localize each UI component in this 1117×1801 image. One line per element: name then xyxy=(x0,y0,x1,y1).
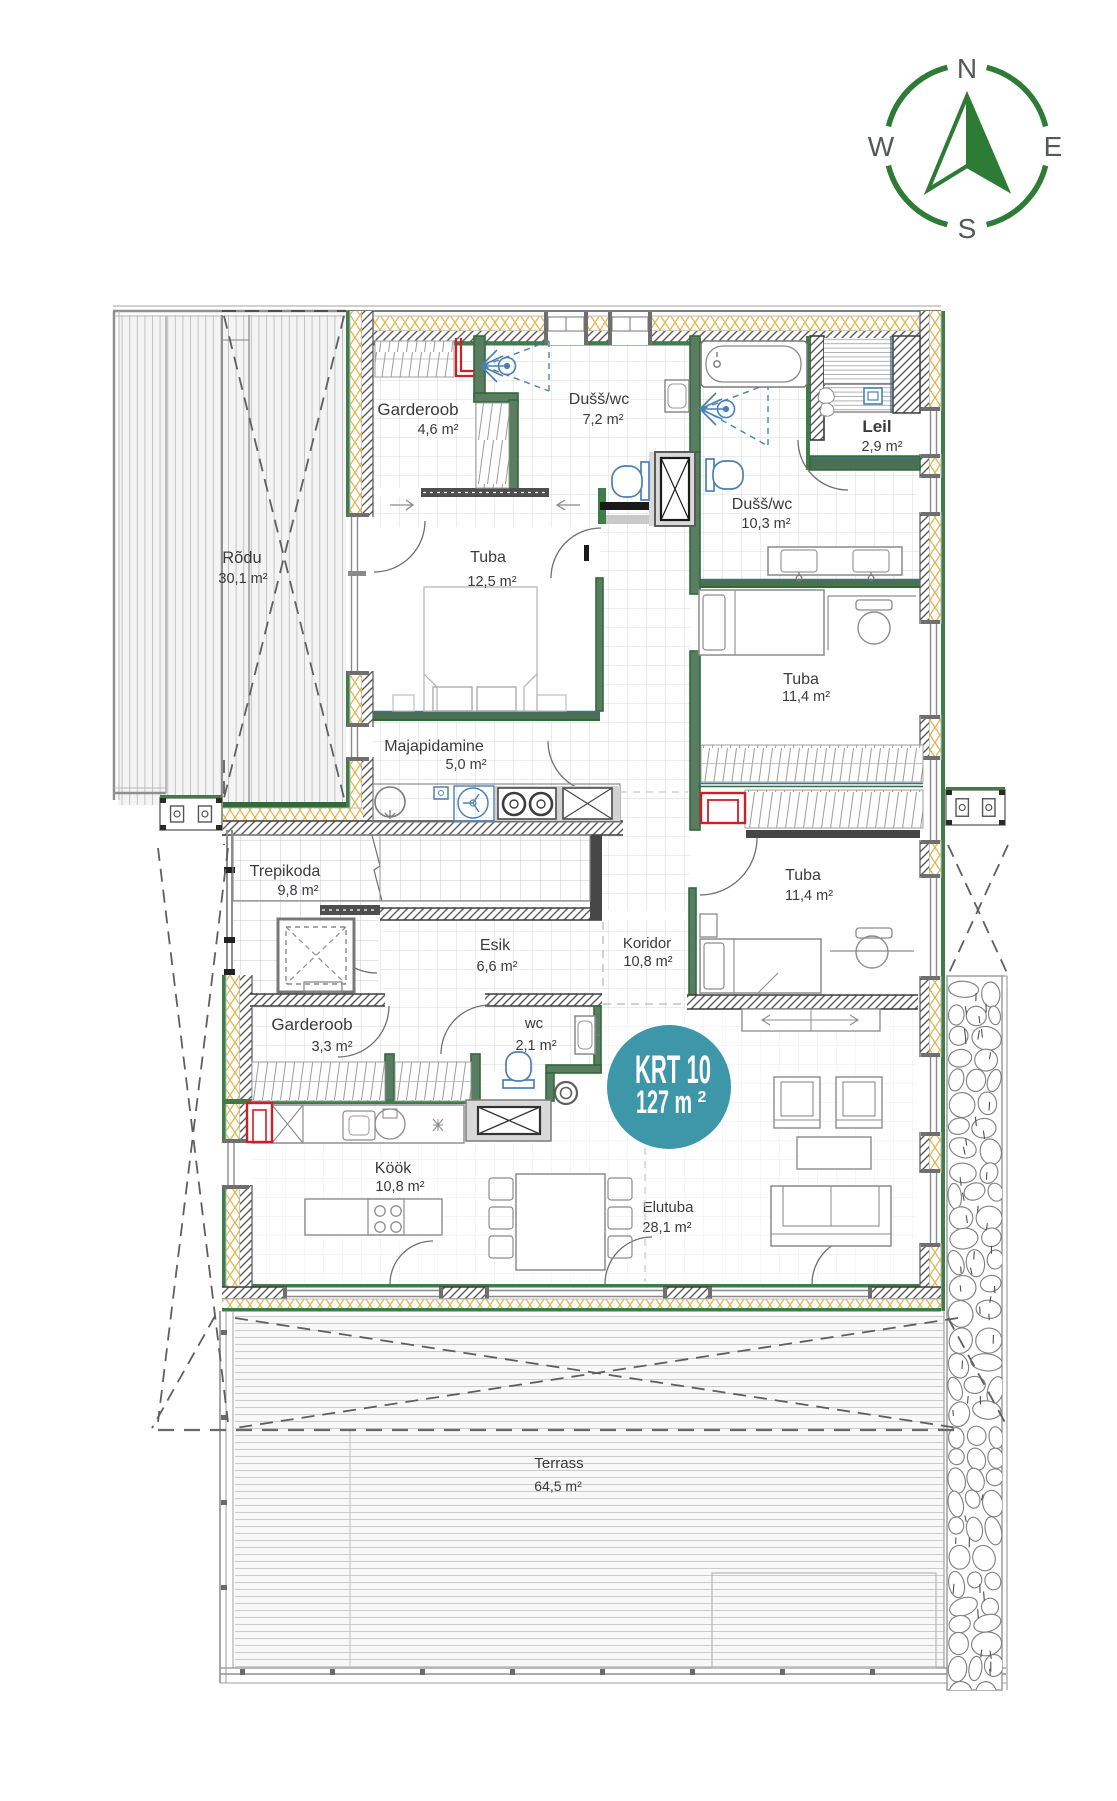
svg-text:Trepikoda: Trepikoda xyxy=(250,863,321,880)
svg-text:7,2 m²: 7,2 m² xyxy=(582,412,623,428)
svg-text:12,5 m²: 12,5 m² xyxy=(467,574,516,590)
svg-text:30,1 m²: 30,1 m² xyxy=(218,571,267,587)
svg-text:4,6 m²: 4,6 m² xyxy=(417,422,458,438)
svg-text:10,8 m²: 10,8 m² xyxy=(375,1179,424,1195)
svg-text:5,0 m²: 5,0 m² xyxy=(445,757,486,773)
svg-text:Tuba: Tuba xyxy=(470,549,506,566)
svg-text:28,1 m²: 28,1 m² xyxy=(642,1220,691,1236)
svg-text:Köök: Köök xyxy=(375,1160,412,1177)
svg-text:Rõdu: Rõdu xyxy=(222,549,261,567)
svg-text:127 m: 127 m xyxy=(636,1084,692,1120)
svg-text:Tuba: Tuba xyxy=(783,671,819,688)
svg-text:wc: wc xyxy=(524,1015,544,1032)
svg-text:10,3 m²: 10,3 m² xyxy=(741,516,790,532)
svg-text:Garderoob: Garderoob xyxy=(271,1015,352,1034)
svg-text:11,4 m²: 11,4 m² xyxy=(782,689,830,705)
svg-text:10,8 m²: 10,8 m² xyxy=(623,954,672,970)
svg-text:Dušš/wc: Dušš/wc xyxy=(569,391,629,408)
svg-text:W: W xyxy=(868,131,895,162)
svg-text:Dušš/wc: Dušš/wc xyxy=(732,496,792,513)
svg-text:Terrass: Terrass xyxy=(534,1455,583,1472)
svg-text:Elutuba: Elutuba xyxy=(643,1199,695,1216)
svg-text:Esik: Esik xyxy=(480,937,511,954)
svg-text:64,5 m²: 64,5 m² xyxy=(534,1478,582,1494)
svg-text:Majapidamine: Majapidamine xyxy=(384,738,484,755)
svg-text:Tuba: Tuba xyxy=(785,867,821,884)
svg-text:9,8 m²: 9,8 m² xyxy=(277,883,318,899)
svg-text:Koridor: Koridor xyxy=(623,935,671,952)
svg-text:S: S xyxy=(958,213,977,244)
svg-text:2: 2 xyxy=(698,1089,707,1106)
svg-text:Leil: Leil xyxy=(862,417,891,436)
svg-text:2,1 m²: 2,1 m² xyxy=(515,1038,556,1054)
svg-text:N: N xyxy=(957,53,977,84)
svg-text:11,4 m²: 11,4 m² xyxy=(785,888,833,904)
svg-text:E: E xyxy=(1044,131,1063,162)
svg-text:2,9 m²: 2,9 m² xyxy=(861,439,902,455)
svg-text:6,6 m²: 6,6 m² xyxy=(476,959,517,975)
svg-text:3,3 m²: 3,3 m² xyxy=(311,1039,352,1055)
svg-text:Garderoob: Garderoob xyxy=(377,400,458,419)
